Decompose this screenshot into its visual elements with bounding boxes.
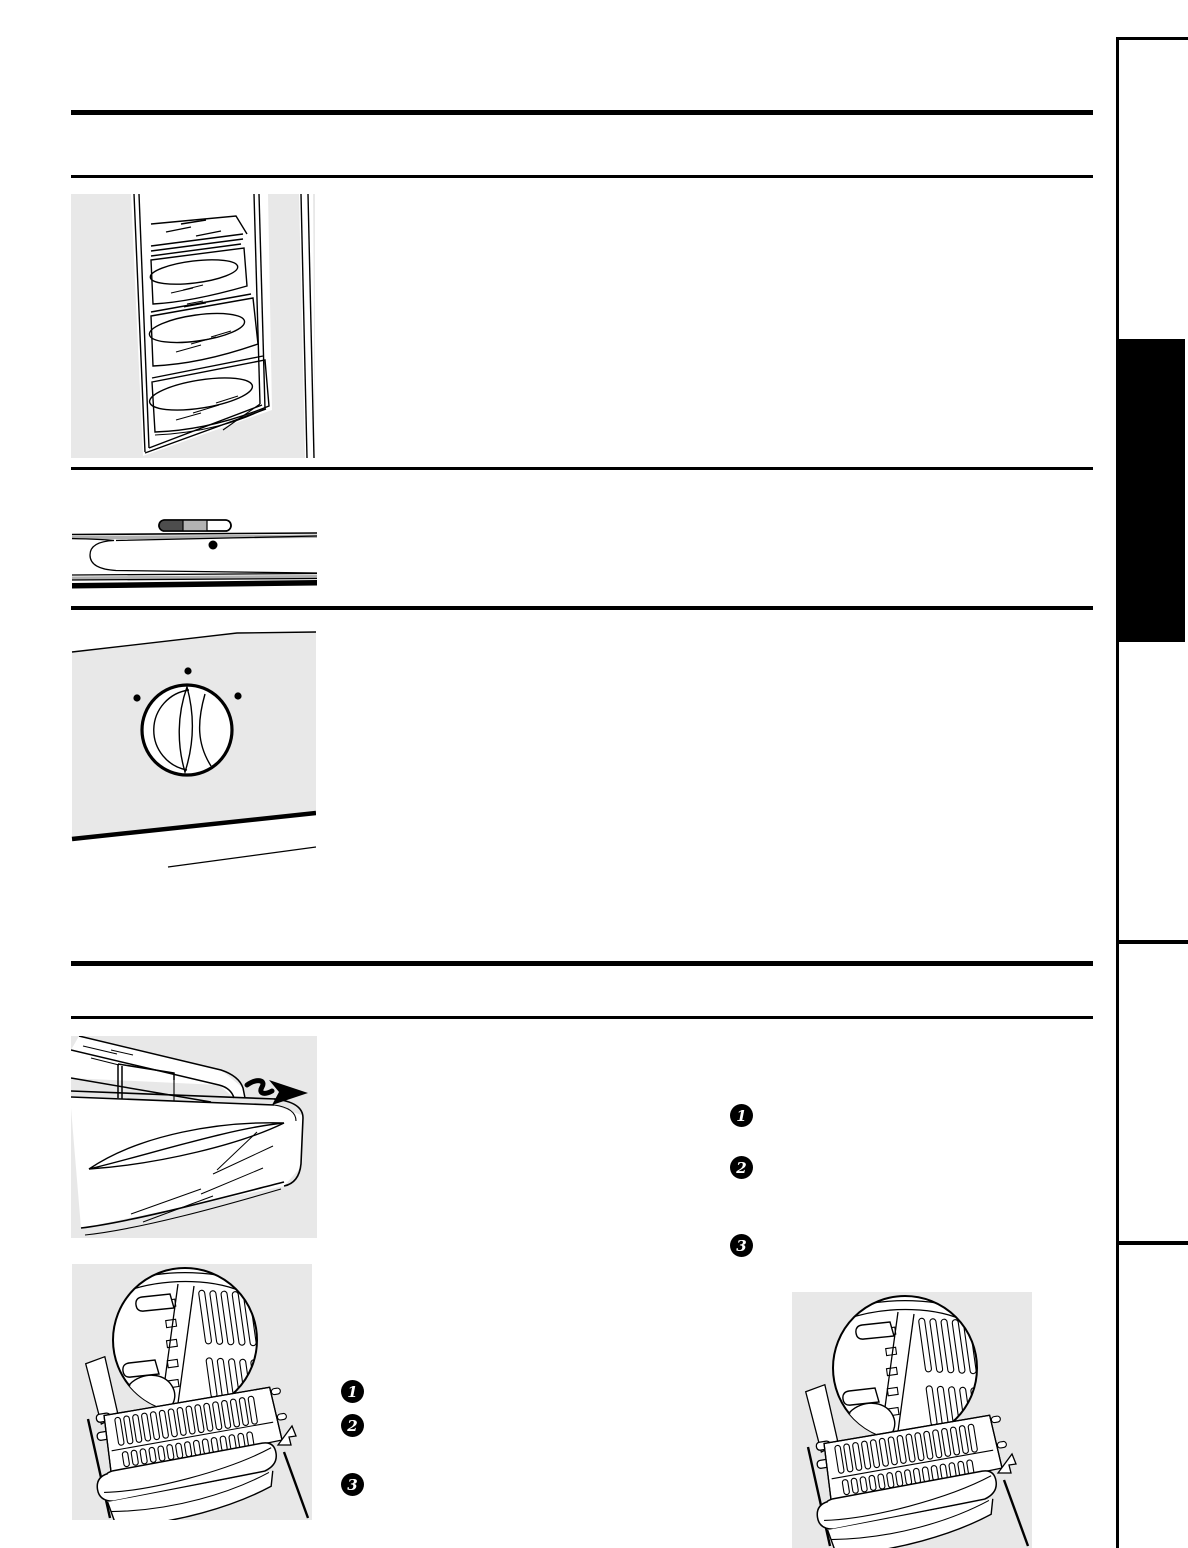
slider-drawing <box>72 518 317 593</box>
drawer-support-drawing <box>792 1292 1032 1548</box>
freezer-temperature-slider-illustration <box>72 518 317 593</box>
freezer-door-bins-drawing <box>71 194 315 458</box>
freezer-door-bins-illustration <box>71 194 315 458</box>
sidebar-section-divider-1 <box>1116 940 1188 944</box>
step-marker: 2 <box>730 1156 753 1179</box>
knob-position-dot-right <box>234 692 241 699</box>
step-marker: 3 <box>730 1234 753 1257</box>
section-rule-thick-bottom <box>71 961 1093 966</box>
step-marker: 3 <box>341 1473 364 1496</box>
crisper-drawer-drawing <box>71 1036 317 1238</box>
section-rule-thin-3 <box>71 606 1093 610</box>
step-number: 1 <box>736 1107 746 1125</box>
temperature-control-knob-illustration <box>71 630 316 875</box>
step-number: 3 <box>736 1237 746 1255</box>
step-marker: 1 <box>341 1380 364 1403</box>
drawer-support-detail-illustration <box>792 1292 1032 1548</box>
knob-drawing <box>71 630 316 875</box>
step-number: 2 <box>347 1417 357 1435</box>
sidebar-top-cap <box>1116 37 1188 40</box>
step-number: 2 <box>736 1159 746 1177</box>
drawer-support-detail-illustration <box>72 1264 312 1520</box>
knob-dial-icon <box>142 685 232 775</box>
sidebar-section-divider-2 <box>1116 1241 1188 1245</box>
section-rule-thin-4 <box>71 1016 1093 1019</box>
sidebar-vertical-divider <box>1116 37 1119 1548</box>
section-rule-thick-top <box>71 110 1093 115</box>
knob-position-dot-top <box>184 667 191 674</box>
step-marker: 1 <box>730 1104 753 1127</box>
slider-control-icon <box>159 520 231 531</box>
removal-arrow-icon <box>247 1080 308 1105</box>
crisper-drawer-removal-illustration <box>71 1036 317 1238</box>
drawer-support-drawing <box>72 1264 312 1520</box>
sidebar-active-section-tab <box>1119 339 1185 642</box>
section-rule-thin-1 <box>71 175 1093 178</box>
knob-position-dot-left <box>133 694 140 701</box>
step-marker: 2 <box>341 1414 364 1437</box>
step-number: 3 <box>347 1476 357 1494</box>
section-rule-thin-2 <box>71 467 1093 470</box>
manual-page: 1 2 3 <box>0 0 1188 1548</box>
step-number: 1 <box>347 1383 357 1401</box>
slider-indicator-dot <box>209 541 218 550</box>
